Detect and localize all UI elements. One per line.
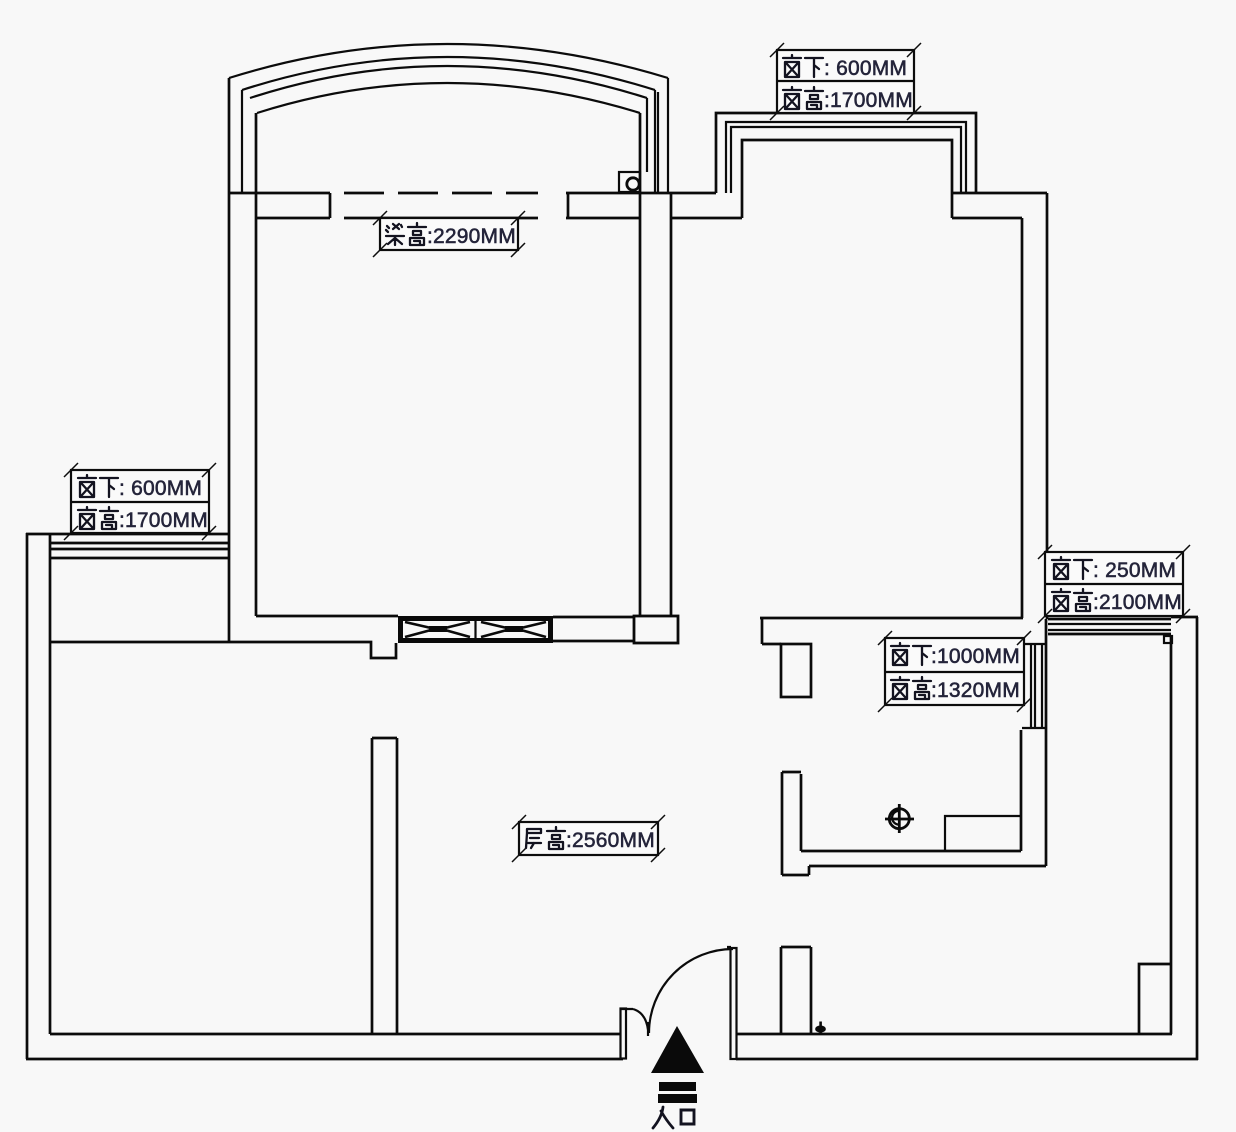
svg-text::2560MM: :2560MM bbox=[566, 829, 655, 852]
svg-text::1320MM: :1320MM bbox=[931, 679, 1020, 702]
svg-text::1700MM: :1700MM bbox=[824, 89, 913, 112]
svg-text:: 600MM: : 600MM bbox=[119, 477, 202, 500]
svg-text:: 250MM: : 250MM bbox=[1093, 559, 1176, 582]
svg-text::1700MM: :1700MM bbox=[119, 509, 208, 532]
svg-text:: 600MM: : 600MM bbox=[824, 57, 907, 80]
svg-text::1000MM: :1000MM bbox=[931, 645, 1020, 668]
svg-text::2290MM: :2290MM bbox=[427, 225, 516, 248]
svg-text::2100MM: :2100MM bbox=[1093, 591, 1182, 614]
